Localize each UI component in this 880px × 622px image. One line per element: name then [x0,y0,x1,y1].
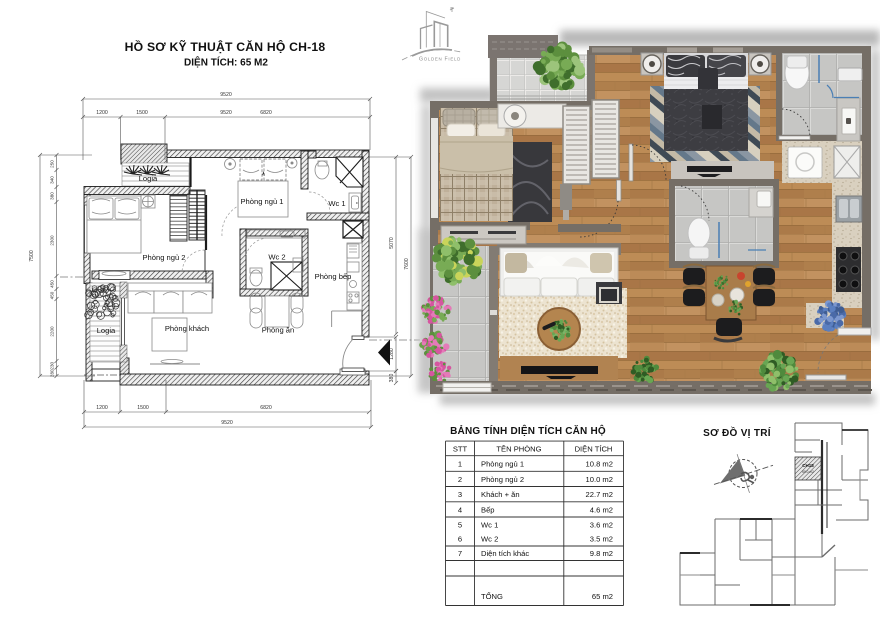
svg-text:2200: 2200 [50,326,55,337]
svg-text:TÊN PHÒNG: TÊN PHÒNG [496,445,541,454]
svg-text:450: 450 [50,280,55,288]
svg-text:Diện tích khác: Diện tích khác [481,549,529,558]
svg-text:Logia: Logia [139,174,158,183]
svg-text:7500: 7500 [29,250,35,262]
svg-text:Bếp: Bếp [481,505,495,514]
svg-text:250: 250 [50,160,55,168]
svg-text:10.8 m2: 10.8 m2 [586,460,613,469]
svg-text:CH18: CH18 [802,463,814,468]
svg-text:Wc 2: Wc 2 [481,535,498,544]
svg-text:9.8 m2: 9.8 m2 [590,549,613,558]
svg-text:22.7 m2: 22.7 m2 [586,490,613,499]
svg-text:1500: 1500 [137,405,149,411]
svg-text:Phòng ngủ 2: Phòng ngủ 2 [142,253,185,262]
svg-text:380: 380 [389,374,395,383]
svg-text:10.0 m2: 10.0 m2 [586,475,613,484]
svg-text:5: 5 [458,521,462,530]
svg-text:2: 2 [458,475,462,484]
svg-text:3.6 m2: 3.6 m2 [590,521,613,530]
svg-text:BẢNG TÍNH DIỆN TÍCH CĂN HỘ: BẢNG TÍNH DIỆN TÍCH CĂN HỘ [450,424,606,437]
svg-text:1200: 1200 [96,110,108,116]
svg-text:380: 380 [50,192,55,200]
svg-text:3: 3 [458,490,462,499]
svg-text:4: 4 [458,505,462,514]
svg-text:3.5 m2: 3.5 m2 [590,535,613,544]
svg-text:HỒ SƠ KỸ THUẬT CĂN HỘ CH-18: HỒ SƠ KỸ THUẬT CĂN HỘ CH-18 [125,39,326,54]
svg-text:1200: 1200 [96,405,108,411]
svg-text:Phòng ăn: Phòng ăn [262,326,295,335]
svg-text:SƠ ĐỒ VỊ TRÍ: SƠ ĐỒ VỊ TRÍ [703,426,771,439]
svg-text:DIỆN TÍCH: DIỆN TÍCH [575,445,613,454]
svg-text:DIỆN TÍCH: 65 M2: DIỆN TÍCH: 65 M2 [184,56,268,69]
svg-text:6820: 6820 [260,110,272,116]
svg-text:Khách + ăn: Khách + ăn [481,490,520,499]
svg-text:450: 450 [50,291,55,299]
svg-text:7600: 7600 [404,258,410,270]
svg-text:Wc 1: Wc 1 [328,199,345,208]
svg-text:230: 230 [50,361,55,369]
svg-text:Phòng ngủ 1: Phòng ngủ 1 [481,460,524,469]
svg-text:340: 340 [50,176,55,184]
svg-text:65.0 m2: 65.0 m2 [802,470,814,474]
svg-text:9520: 9520 [220,92,232,98]
svg-text:7: 7 [458,549,462,558]
svg-text:65 m2: 65 m2 [592,592,613,601]
svg-text:Wc 1: Wc 1 [481,521,498,530]
svg-text:TỔNG: TỔNG [481,592,503,601]
svg-text:6: 6 [458,535,462,544]
svg-text:2300: 2300 [50,235,55,246]
svg-text:1: 1 [458,460,462,469]
svg-text:Phòng ngủ 1: Phòng ngủ 1 [240,197,283,206]
svg-text:Phòng ngủ 2: Phòng ngủ 2 [481,475,524,484]
svg-text:Logia: Logia [97,326,116,335]
svg-text:9520: 9520 [220,110,232,116]
svg-text:Phòng bếp: Phòng bếp [315,272,352,281]
svg-text:1500: 1500 [136,110,148,116]
svg-text:Wc 2: Wc 2 [268,253,285,262]
svg-text:6820: 6820 [260,405,272,411]
svg-text:Phòng khách: Phòng khách [165,324,209,333]
svg-text:4.6 m2: 4.6 m2 [590,505,613,514]
svg-text:STT: STT [453,445,468,454]
svg-text:5070: 5070 [389,237,395,249]
svg-text:9520: 9520 [221,420,233,426]
